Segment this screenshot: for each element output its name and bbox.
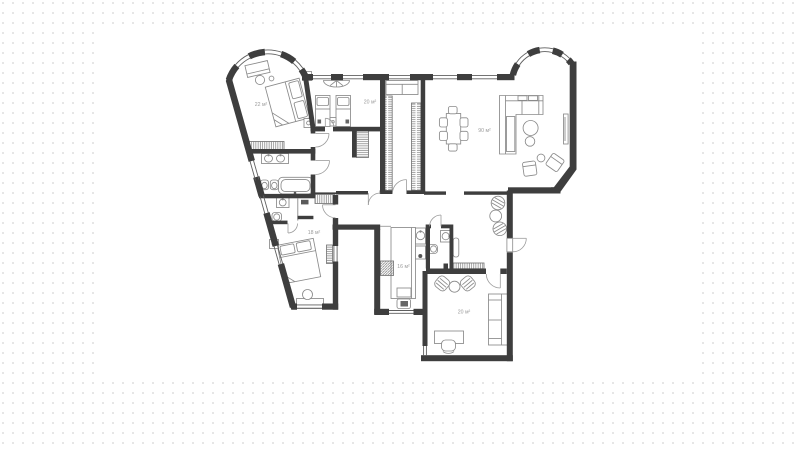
svg-text:90 м²: 90 м² — [478, 128, 491, 134]
svg-text:18 м²: 18 м² — [308, 230, 321, 236]
svg-text:22 м²: 22 м² — [255, 102, 268, 108]
svg-text:16 м²: 16 м² — [397, 264, 410, 270]
svg-text:20 м²: 20 м² — [458, 310, 471, 316]
svg-text:20 м²: 20 м² — [364, 100, 377, 106]
